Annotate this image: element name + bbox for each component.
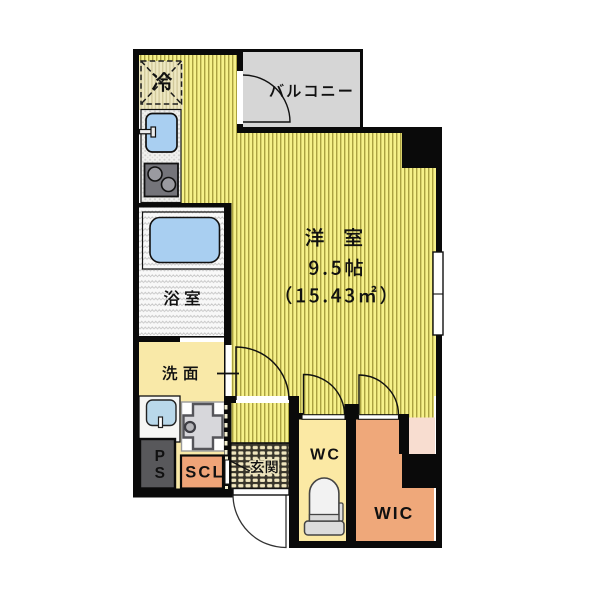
svg-text:S: S [155, 465, 165, 482]
svg-text:P: P [155, 448, 165, 465]
svg-text:WIC: WIC [374, 503, 414, 523]
svg-text:SCL: SCL [185, 463, 225, 481]
svg-text:WC: WC [310, 447, 341, 464]
